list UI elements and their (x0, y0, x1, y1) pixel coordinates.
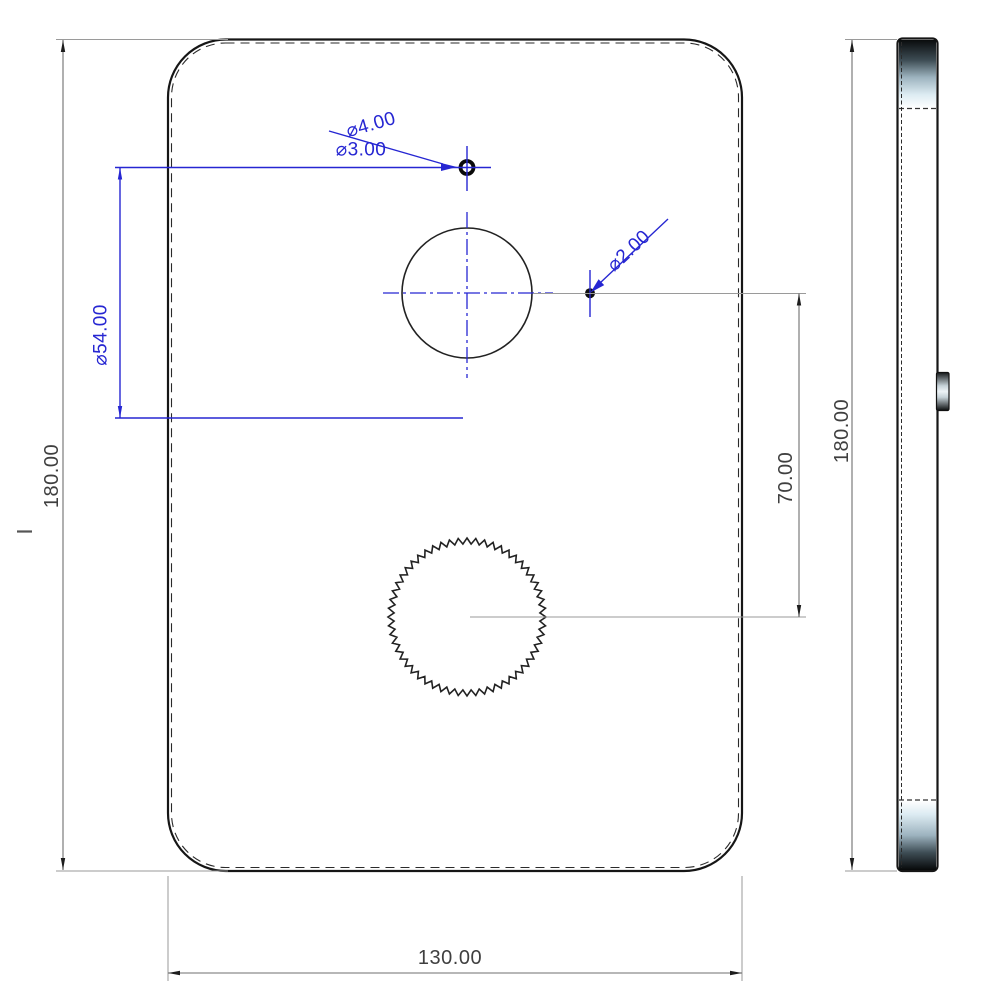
dim-text-side-height: 180.00 (831, 399, 853, 463)
side-view (898, 39, 950, 872)
arrow-left (168, 971, 180, 975)
side-view-bottom-shading (899, 801, 936, 871)
arrow-down (61, 858, 65, 870)
dim-text-top-hole-inner: ⌀3.00 (336, 140, 386, 161)
dim-text-front-width: 130.00 (418, 947, 482, 969)
arrow-down (850, 858, 854, 870)
arrow-up (797, 294, 801, 306)
dim-text-hole-spacing: 70.00 (775, 452, 797, 505)
dim-front-width: 130.00 (168, 876, 742, 981)
arrow-up (118, 168, 122, 180)
dim-text-feature-diameter: ⌀54.00 (91, 304, 112, 365)
arrow-right (730, 971, 742, 975)
side-view-outline (898, 39, 938, 872)
plate-outline (168, 40, 742, 872)
side-view-boss (937, 373, 950, 411)
dim-side-height: 180.00 (831, 40, 897, 872)
side-view-top-shading (899, 40, 936, 108)
arrow-down (118, 406, 122, 418)
arrow-up (850, 40, 854, 52)
cad-drawing-canvas: 180.00 130.00 ⌀54.00 ⌀4.00 ⌀3.00 ⌀2.00 (0, 0, 1005, 1005)
arrow-down (797, 605, 801, 617)
arrow-up (61, 40, 65, 52)
front-view (168, 40, 742, 872)
dim-text-front-height: 180.00 (41, 444, 63, 508)
